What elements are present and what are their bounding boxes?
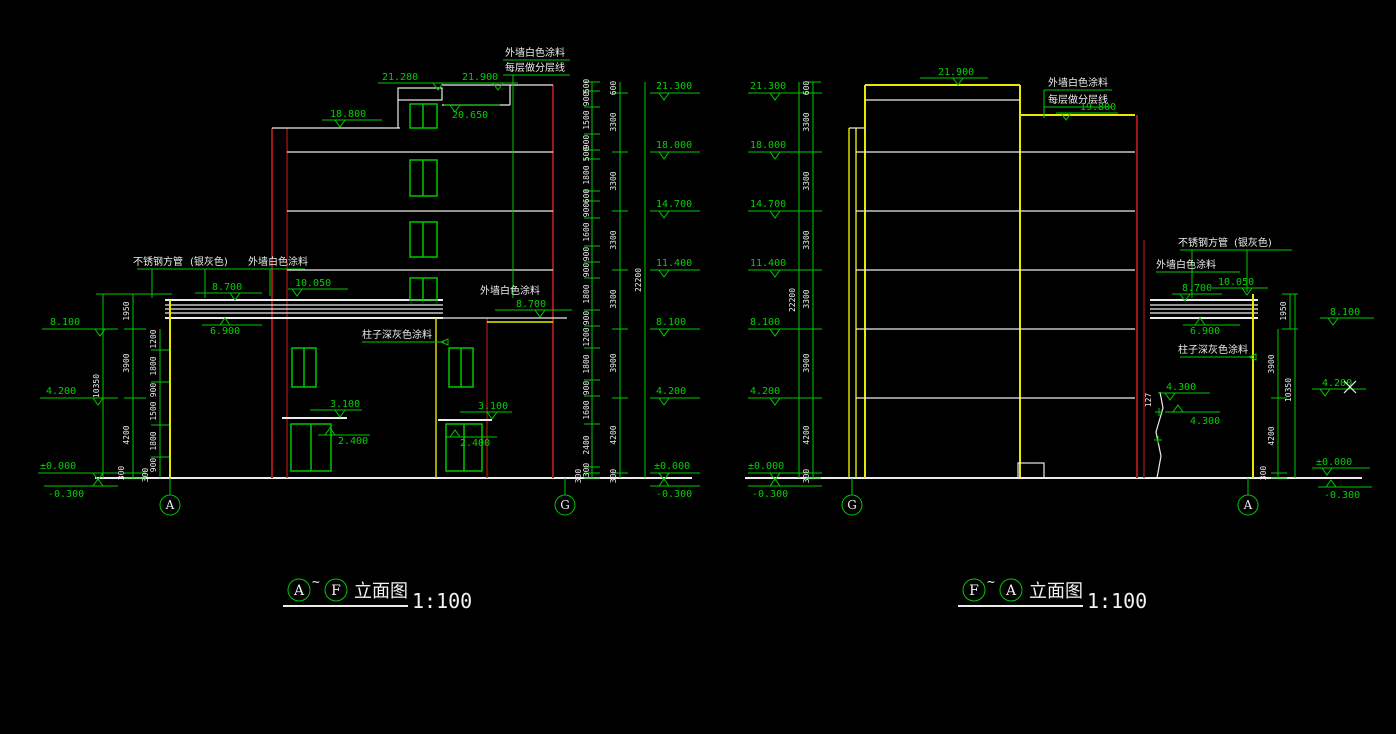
title-name: 立面图 — [1029, 581, 1083, 602]
small-dim: 1600 — [582, 222, 591, 241]
elevation-2400-left: 2.400 — [338, 436, 368, 447]
mid-dim: 3300 — [609, 112, 618, 131]
elevation-3100-right: 3.100 — [478, 401, 508, 412]
level-21300: 21.300 — [750, 81, 786, 92]
small-dim: 300 — [582, 463, 591, 478]
title-bubble-f: F — [331, 583, 341, 599]
dim-3900: 3900 — [122, 353, 131, 372]
small-dim: 900 — [582, 381, 591, 396]
right-title: F ~ A 立面图 1:100 — [958, 575, 1147, 613]
level-18000: 18.000 — [750, 140, 786, 151]
elevation-2400-right: 2.400 — [460, 438, 490, 449]
title-tilde: ~ — [312, 575, 320, 590]
grid-bubble-g: G — [560, 498, 570, 512]
grid-bubble-a: A — [165, 498, 175, 512]
mid-dim: 300 — [609, 469, 618, 484]
dim-total-10350: 10350 — [92, 374, 101, 398]
annotation-steel-tube: 不锈钢方管 — [133, 255, 183, 268]
dim-300: 300 — [117, 466, 126, 481]
left-building-outline — [95, 85, 692, 478]
dim-1200: 1200 — [149, 329, 158, 348]
small-dim: 500 — [582, 79, 591, 94]
elevation-10050: 10.050 — [1218, 277, 1254, 288]
elevation-21900: 21.900 — [938, 67, 974, 78]
grid-bubble-a: A — [1243, 498, 1253, 512]
elevation-8700: 8.700 — [1182, 283, 1212, 294]
annotation-wall-paint: 外墙白色涂料 — [1048, 76, 1108, 89]
annotation-wall-paint: 外墙白色涂料 — [1156, 258, 1216, 271]
mid-dim: 3900 — [802, 353, 811, 372]
annotation-column-paint: 柱子深灰色涂料 — [1178, 343, 1248, 356]
elevation-4300-lower: 4.300 — [1190, 416, 1220, 427]
small-dim: 300 — [574, 469, 583, 484]
elevation-3100-left: 3.100 — [330, 399, 360, 410]
level-14700: 14.700 — [656, 199, 692, 210]
dim-1950: 1950 — [1279, 301, 1288, 320]
elevation-18800: 18.800 — [330, 109, 366, 120]
dim-base-300: 300 — [141, 468, 150, 483]
elevation-21900: 21.900 — [462, 72, 498, 83]
elevation-20650: 20.650 — [452, 110, 488, 121]
annotation-wall-paint-left: 外墙白色涂料 — [248, 255, 308, 268]
annotation-wall-paint-right: 外墙白色涂料 — [480, 284, 540, 297]
dim-1800a: 1800 — [149, 356, 158, 375]
elevation-4300-upper: 4.300 — [1166, 382, 1196, 393]
small-dim: 500 — [582, 147, 591, 162]
dim-total-22200: 22200 — [788, 288, 797, 312]
small-dim: 900 — [582, 311, 591, 326]
dim-10350: 10350 — [1284, 378, 1293, 402]
level-4200: 4.200 — [46, 386, 76, 397]
left-canopy — [165, 300, 443, 478]
elevation-m0300: -0.300 — [1324, 490, 1360, 501]
mid-dim: 3300 — [802, 171, 811, 190]
elevation-6900: 6.900 — [210, 326, 240, 337]
title-bubble-a: A — [1005, 583, 1017, 599]
level-8100: 8.100 — [656, 317, 686, 328]
title-scale: 1:100 — [412, 589, 472, 613]
mid-dim: 300 — [802, 469, 811, 484]
right-elevation: 21.900 外墙白色涂料 每层做分层线 19.800 21.300 18.00… — [745, 67, 1374, 613]
small-dim: 900 — [582, 247, 591, 262]
annotation-wall-paint: 外墙白色涂料 — [505, 46, 565, 59]
level-4200: 4.200 — [656, 386, 686, 397]
small-dim: 1800 — [582, 354, 591, 373]
mid-dim: 3300 — [609, 289, 618, 308]
left-dim-column-right: 500 900 1500 900 500 1800 600 900 1600 9… — [574, 79, 700, 500]
elevation-4200: 4.200 — [1322, 378, 1352, 389]
dim-3900: 3900 — [1267, 354, 1276, 373]
mid-dim: 3300 — [609, 171, 618, 190]
level-14700: 14.700 — [750, 199, 786, 210]
left-title: A ~ F 立面图 1:100 — [283, 575, 472, 613]
dim-4200: 4200 — [1267, 426, 1276, 445]
right-building-outline — [745, 85, 1362, 478]
right-dim-column-left: 21.300 18.000 14.700 11.400 8.100 4.200 … — [748, 81, 822, 500]
level-0000: ±0.000 — [748, 461, 784, 472]
dim-127: 127 — [1144, 393, 1153, 408]
level-8100: 8.100 — [50, 317, 80, 328]
level-11400: 11.400 — [656, 258, 692, 269]
level-4200: 4.200 — [750, 386, 780, 397]
level-0000: ±0.000 — [40, 461, 76, 472]
level-m0300: -0.300 — [48, 489, 84, 500]
title-bubble-f: F — [969, 583, 979, 599]
title-tilde: ~ — [987, 575, 995, 590]
level-11400: 11.400 — [750, 258, 786, 269]
mid-dim: 3300 — [802, 289, 811, 308]
small-dim: 1800 — [582, 284, 591, 303]
left-dim-column-left: 8.100 4.200 ±0.000 -0.300 1950 3900 4200… — [38, 294, 172, 500]
right-grid-bubbles: G A — [842, 478, 1258, 515]
elevation-0000: ±0.000 — [1316, 457, 1352, 468]
elevation-8100: 8.100 — [1330, 307, 1360, 318]
dim-300: 300 — [1259, 466, 1268, 481]
annotation-silver-gray: (银灰色) — [190, 255, 228, 268]
left-top-annotations: 外墙白色涂料 每层做分层线 21.900 21.280 20.650 18.80… — [322, 46, 570, 298]
mid-dim: 3300 — [802, 112, 811, 131]
annotation-column-paint: 柱子深灰色涂料 — [362, 328, 432, 341]
small-dim: 1200 — [582, 327, 591, 346]
small-dim: 1500 — [582, 110, 591, 129]
dim-1500: 1500 — [149, 401, 158, 420]
level-0000: ±0.000 — [654, 461, 690, 472]
annotation-floor-lines: 每层做分层线 — [505, 61, 565, 74]
dim-900a: 900 — [149, 383, 158, 398]
annotation-silver-gray: (银灰色) — [1234, 236, 1272, 249]
small-dim: 900 — [582, 92, 591, 107]
level-18000: 18.000 — [656, 140, 692, 151]
elevation-21280: 21.280 — [382, 72, 418, 83]
left-grid-bubbles: A G — [160, 478, 575, 515]
small-dim: 1800 — [582, 165, 591, 184]
mid-dim: 3900 — [609, 353, 618, 372]
mid-dim: 600 — [802, 81, 811, 96]
elevation-6900: 6.900 — [1190, 326, 1220, 337]
mid-dim: 3300 — [802, 230, 811, 249]
dim-4200: 4200 — [122, 425, 131, 444]
dim-total-22200: 22200 — [634, 268, 643, 292]
cad-canvas: 外墙白色涂料 每层做分层线 21.900 21.280 20.650 18.80… — [0, 0, 1396, 734]
level-m0300: -0.300 — [752, 489, 788, 500]
small-dim: 1600 — [582, 400, 591, 419]
mid-dim: 4200 — [609, 425, 618, 444]
dim-1800b: 1800 — [149, 431, 158, 450]
small-dim: 900 — [582, 203, 591, 218]
level-m0300: -0.300 — [656, 489, 692, 500]
elevation-19800: 19.800 — [1080, 102, 1116, 113]
elevation-8700-left: 8.700 — [212, 282, 242, 293]
dim-900b: 900 — [149, 458, 158, 473]
left-mid-annotations: 不锈钢方管 (银灰色) 外墙白色涂料 8.700 10.050 6.900 柱子… — [133, 255, 572, 449]
grid-bubble-g: G — [847, 498, 857, 512]
small-dim: 900 — [582, 263, 591, 278]
elevation-10050: 10.050 — [295, 278, 331, 289]
small-dim: 600 — [582, 189, 591, 204]
left-elevation: 外墙白色涂料 每层做分层线 21.900 21.280 20.650 18.80… — [38, 46, 700, 613]
mid-dim: 3300 — [609, 230, 618, 249]
annotation-steel-tube: 不锈钢方管 — [1178, 236, 1228, 249]
small-dim: 2400 — [582, 435, 591, 454]
right-side-annotations: 不锈钢方管 (银灰色) 外墙白色涂料 8.700 10.050 6.900 19… — [1144, 236, 1374, 501]
title-name: 立面图 — [354, 581, 408, 602]
drawing-svg: 外墙白色涂料 每层做分层线 21.900 21.280 20.650 18.80… — [0, 0, 1396, 734]
dim-1950: 1950 — [122, 301, 131, 320]
mid-dim: 600 — [609, 81, 618, 96]
level-8100: 8.100 — [750, 317, 780, 328]
level-21300: 21.300 — [656, 81, 692, 92]
mid-dim: 4200 — [802, 425, 811, 444]
elevation-8700-right: 8.700 — [516, 299, 546, 310]
title-bubble-a: A — [293, 583, 305, 599]
title-scale: 1:100 — [1087, 589, 1147, 613]
